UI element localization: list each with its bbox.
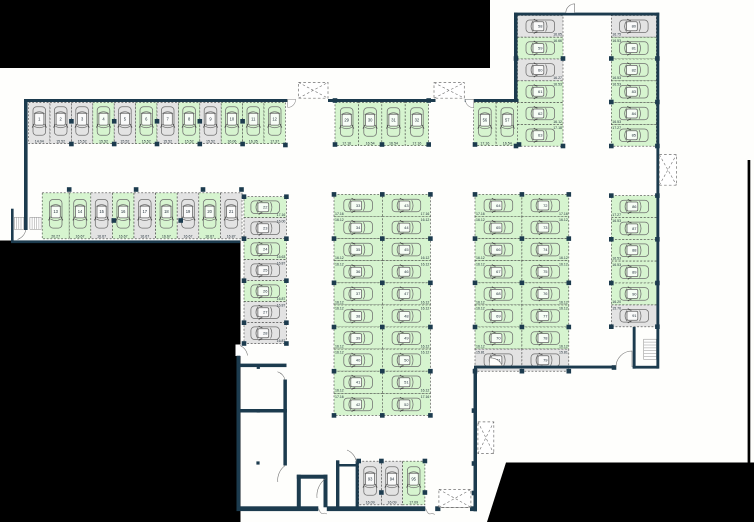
svg-text:21: 21 (229, 209, 234, 214)
svg-text:15.52: 15.52 (56, 140, 65, 144)
svg-text:76: 76 (543, 291, 548, 296)
svg-text:85: 85 (632, 133, 637, 138)
svg-text:15: 15 (99, 209, 104, 214)
svg-text:56: 56 (483, 117, 488, 122)
svg-text:42: 42 (356, 402, 361, 407)
svg-text:16.12: 16.12 (559, 218, 568, 222)
svg-text:16.87: 16.87 (277, 303, 286, 307)
svg-text:16.12: 16.12 (421, 307, 430, 311)
svg-text:16.67: 16.67 (162, 235, 171, 239)
svg-text:22: 22 (263, 205, 268, 210)
svg-text:16.06: 16.06 (227, 140, 236, 144)
svg-text:16.12: 16.12 (335, 351, 344, 355)
svg-text:16.12: 16.12 (559, 300, 568, 304)
svg-text:77: 77 (543, 313, 548, 318)
svg-text:16.12: 16.12 (421, 262, 430, 266)
svg-text:16.12: 16.12 (421, 218, 430, 222)
svg-text:17.27: 17.27 (612, 126, 621, 130)
svg-text:16.66: 16.66 (553, 39, 562, 43)
svg-text:65: 65 (496, 225, 501, 230)
svg-text:16.12: 16.12 (335, 345, 344, 349)
svg-text:27: 27 (263, 310, 268, 315)
svg-text:16.67: 16.67 (205, 235, 214, 239)
svg-text:17.16: 17.16 (421, 395, 430, 399)
svg-text:16.53: 16.53 (553, 82, 562, 86)
svg-text:16.53: 16.53 (612, 120, 621, 124)
svg-text:16.12: 16.12 (335, 256, 344, 260)
svg-text:41: 41 (356, 380, 361, 385)
svg-text:40: 40 (356, 358, 361, 363)
svg-text:57: 57 (505, 117, 510, 122)
svg-text:16.87: 16.87 (227, 235, 236, 239)
svg-text:88: 88 (632, 248, 637, 253)
svg-text:31: 31 (391, 117, 396, 122)
svg-text:45: 45 (404, 247, 409, 252)
svg-text:95: 95 (411, 476, 416, 481)
svg-text:20: 20 (207, 209, 212, 214)
svg-text:17: 17 (143, 209, 148, 214)
svg-text:15.52: 15.52 (78, 140, 87, 144)
svg-text:72: 72 (543, 203, 548, 208)
svg-text:46: 46 (404, 269, 409, 274)
svg-text:64: 64 (496, 203, 501, 208)
svg-text:16.53: 16.53 (612, 82, 621, 86)
svg-text:17.37: 17.37 (270, 140, 279, 144)
svg-text:14: 14 (78, 209, 83, 214)
svg-text:79: 79 (543, 358, 548, 363)
svg-text:16.53: 16.53 (612, 219, 621, 223)
svg-text:16.12: 16.12 (421, 351, 430, 355)
svg-text:16.12: 16.12 (421, 300, 430, 304)
svg-text:17.16: 17.16 (342, 142, 351, 146)
svg-text:24: 24 (263, 247, 268, 252)
svg-text:86: 86 (632, 204, 637, 209)
svg-text:16.54: 16.54 (389, 142, 398, 146)
svg-text:47: 47 (404, 291, 409, 296)
svg-text:16.12: 16.12 (335, 300, 344, 304)
svg-text:16.67: 16.67 (76, 235, 85, 239)
svg-text:28: 28 (263, 331, 268, 336)
svg-text:33: 33 (356, 203, 361, 208)
svg-text:25: 25 (263, 268, 268, 273)
svg-text:15.52: 15.52 (120, 140, 129, 144)
svg-text:89: 89 (632, 270, 637, 275)
svg-text:19: 19 (186, 209, 191, 214)
svg-text:16.54: 16.54 (503, 142, 512, 146)
svg-text:16.12: 16.12 (553, 120, 562, 124)
svg-text:17.16: 17.16 (421, 212, 430, 216)
svg-text:16.87: 16.87 (277, 261, 286, 265)
svg-text:16.12: 16.12 (421, 256, 430, 260)
svg-text:30: 30 (368, 117, 373, 122)
svg-text:90: 90 (632, 291, 637, 296)
svg-text:36: 36 (356, 269, 361, 274)
svg-text:38: 38 (356, 313, 361, 318)
svg-text:16.20: 16.20 (612, 300, 621, 304)
svg-text:17.16: 17.16 (412, 142, 421, 146)
svg-text:16.09: 16.09 (388, 501, 397, 505)
svg-text:15.52: 15.52 (142, 140, 151, 144)
svg-text:37: 37 (356, 291, 361, 296)
svg-text:14.04: 14.04 (35, 140, 44, 144)
svg-text:16.35: 16.35 (249, 140, 258, 144)
svg-text:16.67: 16.67 (140, 235, 149, 239)
svg-text:16.12: 16.12 (559, 256, 568, 260)
svg-text:16.87: 16.87 (277, 297, 286, 301)
svg-text:16.12: 16.12 (476, 300, 485, 304)
svg-text:93: 93 (368, 476, 373, 481)
svg-text:17.18: 17.18 (553, 126, 562, 130)
svg-text:84: 84 (632, 111, 637, 116)
svg-text:26: 26 (263, 289, 268, 294)
svg-text:16.12: 16.12 (335, 262, 344, 266)
svg-text:17.16: 17.16 (480, 142, 489, 146)
svg-text:16.12: 16.12 (335, 389, 344, 393)
svg-text:81: 81 (632, 46, 637, 51)
svg-text:16.67: 16.67 (119, 235, 128, 239)
svg-text:60: 60 (538, 67, 543, 72)
svg-text:34: 34 (356, 225, 361, 230)
svg-text:91: 91 (632, 313, 637, 318)
svg-text:16.12: 16.12 (421, 345, 430, 349)
svg-text:58: 58 (538, 24, 543, 29)
svg-text:17.16: 17.16 (335, 395, 344, 399)
svg-text:23: 23 (263, 226, 268, 231)
svg-text:82: 82 (632, 67, 637, 72)
svg-text:16.53: 16.53 (612, 39, 621, 43)
svg-text:16.12: 16.12 (476, 262, 485, 266)
svg-text:69: 69 (496, 313, 501, 318)
svg-text:80: 80 (632, 24, 637, 29)
svg-text:16.53: 16.53 (612, 76, 621, 80)
svg-text:15.81: 15.81 (476, 351, 485, 355)
svg-text:35: 35 (356, 247, 361, 252)
svg-text:16.63: 16.63 (277, 255, 286, 259)
svg-text:73: 73 (543, 225, 548, 230)
svg-text:16.12: 16.12 (335, 307, 344, 311)
svg-text:16.54: 16.54 (366, 142, 375, 146)
svg-text:43: 43 (404, 203, 409, 208)
svg-text:16.27: 16.27 (553, 76, 562, 80)
svg-text:17.27: 17.27 (612, 213, 621, 217)
svg-text:83: 83 (632, 89, 637, 94)
svg-text:11: 11 (251, 116, 256, 121)
svg-text:39: 39 (356, 336, 361, 341)
svg-text:16.12: 16.12 (421, 389, 430, 393)
svg-text:87: 87 (632, 226, 637, 231)
svg-text:16.12: 16.12 (476, 345, 485, 349)
svg-text:16.75: 16.75 (612, 33, 621, 37)
svg-text:62: 62 (538, 111, 543, 116)
svg-text:75: 75 (543, 269, 548, 274)
svg-text:15.81: 15.81 (559, 351, 568, 355)
svg-text:68: 68 (496, 291, 501, 296)
svg-text:17.16: 17.16 (335, 212, 344, 216)
svg-text:70: 70 (496, 336, 501, 341)
svg-text:51: 51 (404, 380, 409, 385)
svg-text:49: 49 (404, 336, 409, 341)
svg-text:15.52: 15.52 (206, 140, 215, 144)
svg-text:16.67: 16.67 (97, 235, 106, 239)
svg-text:59: 59 (538, 46, 543, 51)
svg-text:16.12: 16.12 (559, 345, 568, 349)
svg-text:17.16: 17.16 (476, 212, 485, 216)
svg-text:16.12: 16.12 (559, 307, 568, 311)
svg-text:12: 12 (272, 116, 277, 121)
svg-text:15.52: 15.52 (163, 140, 172, 144)
svg-text:48: 48 (404, 313, 409, 318)
svg-text:67: 67 (496, 269, 501, 274)
svg-text:63: 63 (538, 133, 543, 138)
svg-text:16.12: 16.12 (476, 218, 485, 222)
svg-text:13: 13 (53, 209, 58, 214)
svg-text:15.52: 15.52 (99, 140, 108, 144)
svg-text:16.67: 16.67 (184, 235, 193, 239)
svg-text:61: 61 (538, 89, 543, 94)
svg-text:74: 74 (543, 247, 548, 252)
svg-text:17.16: 17.16 (559, 212, 568, 216)
svg-text:16.12: 16.12 (335, 218, 344, 222)
svg-text:29: 29 (344, 117, 349, 122)
svg-text:16.00: 16.00 (277, 219, 286, 223)
svg-text:16: 16 (121, 209, 126, 214)
svg-text:10: 10 (230, 116, 235, 121)
svg-text:16.65: 16.65 (553, 33, 562, 37)
svg-text:16.12: 16.12 (559, 262, 568, 266)
svg-text:20.27: 20.27 (51, 235, 60, 239)
svg-text:15.76: 15.76 (612, 307, 621, 311)
svg-text:16.12: 16.12 (476, 256, 485, 260)
svg-text:50: 50 (404, 358, 409, 363)
svg-text:16.53: 16.53 (612, 263, 621, 267)
svg-text:17.09: 17.09 (409, 501, 418, 505)
svg-text:17.16: 17.16 (277, 213, 286, 217)
svg-text:78: 78 (543, 336, 548, 341)
svg-text:44: 44 (404, 225, 409, 230)
svg-text:18: 18 (164, 209, 169, 214)
svg-text:16.09: 16.09 (366, 501, 375, 505)
svg-text:52: 52 (404, 402, 409, 407)
svg-text:16.53: 16.53 (612, 257, 621, 261)
svg-text:32: 32 (415, 117, 420, 122)
svg-text:66: 66 (496, 247, 501, 252)
svg-text:94: 94 (390, 476, 395, 481)
svg-text:15.52: 15.52 (185, 140, 194, 144)
svg-text:16.12: 16.12 (476, 307, 485, 311)
